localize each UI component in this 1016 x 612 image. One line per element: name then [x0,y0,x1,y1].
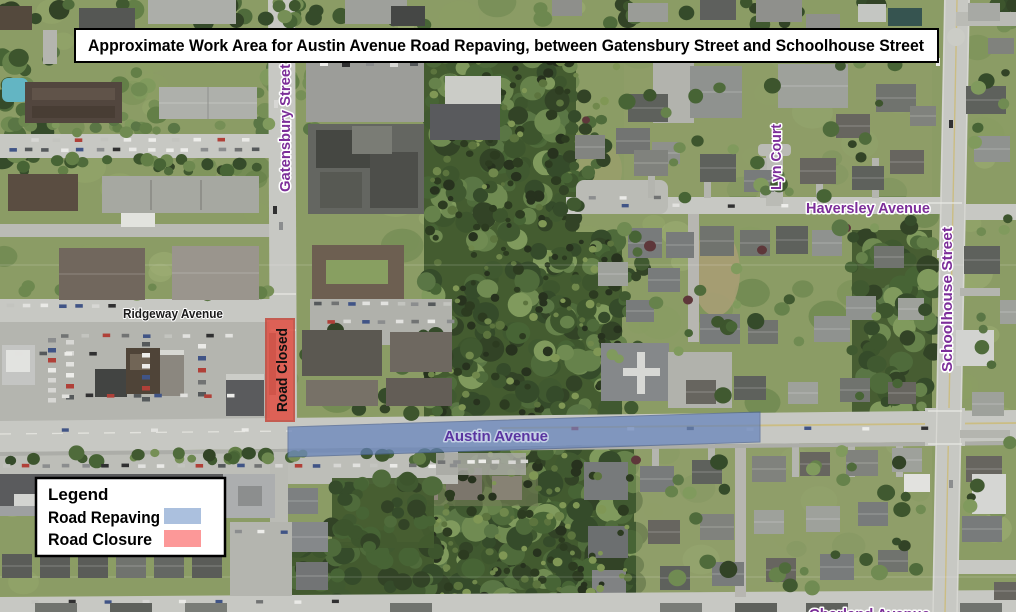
svg-text:Lyn Court: Lyn Court [768,124,785,190]
svg-text:Approximate Work Area for Aust: Approximate Work Area for Austin Avenue … [88,36,924,55]
svg-text:Ridgeway Avenue: Ridgeway Avenue [123,307,223,321]
svg-text:Road Closed: Road Closed [274,328,291,412]
svg-text:Haversley Avenue: Haversley Avenue [806,200,930,217]
svg-text:Gatensbury Street: Gatensbury Street [277,64,294,192]
svg-text:Austin Avenue: Austin Avenue [444,428,548,445]
svg-text:Schoolhouse Street: Schoolhouse Street [939,227,956,372]
svg-text:Charland Avenue: Charland Avenue [809,606,930,612]
svg-text:Road Repaving: Road Repaving [48,508,160,527]
svg-text:Road Closure: Road Closure [48,530,152,549]
svg-text:Legend: Legend [48,485,108,504]
